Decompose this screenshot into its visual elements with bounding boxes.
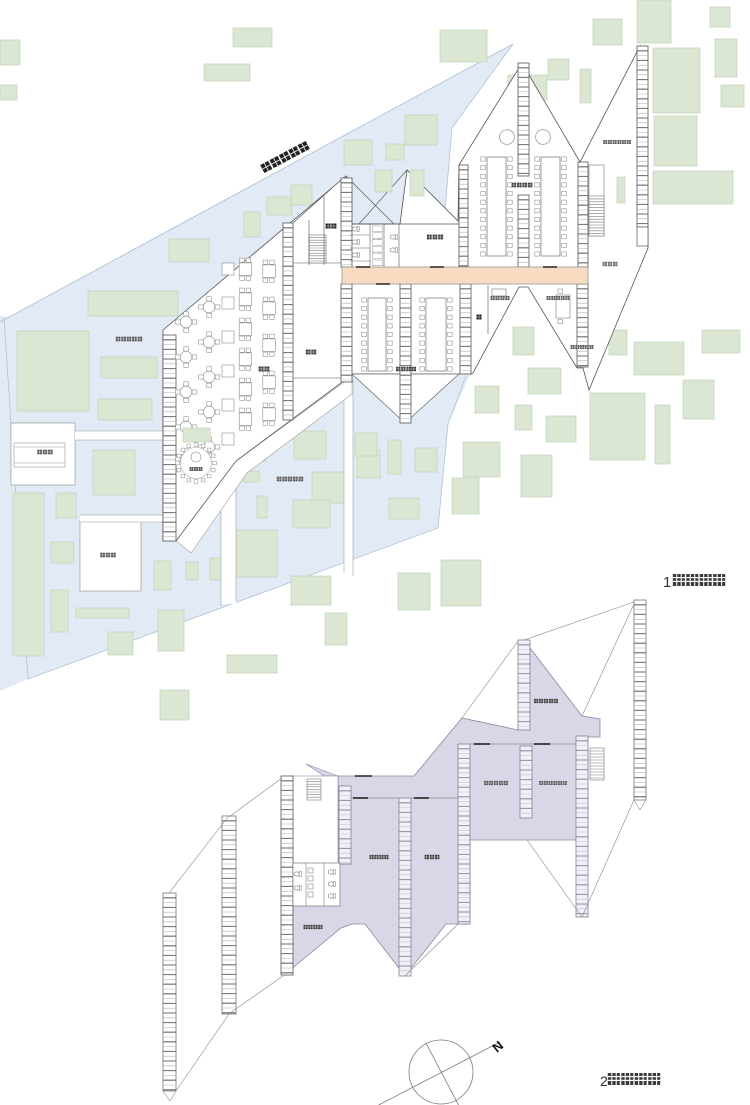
svg-text:2: 2	[600, 1073, 608, 1089]
svg-text:1: 1	[663, 574, 671, 591]
